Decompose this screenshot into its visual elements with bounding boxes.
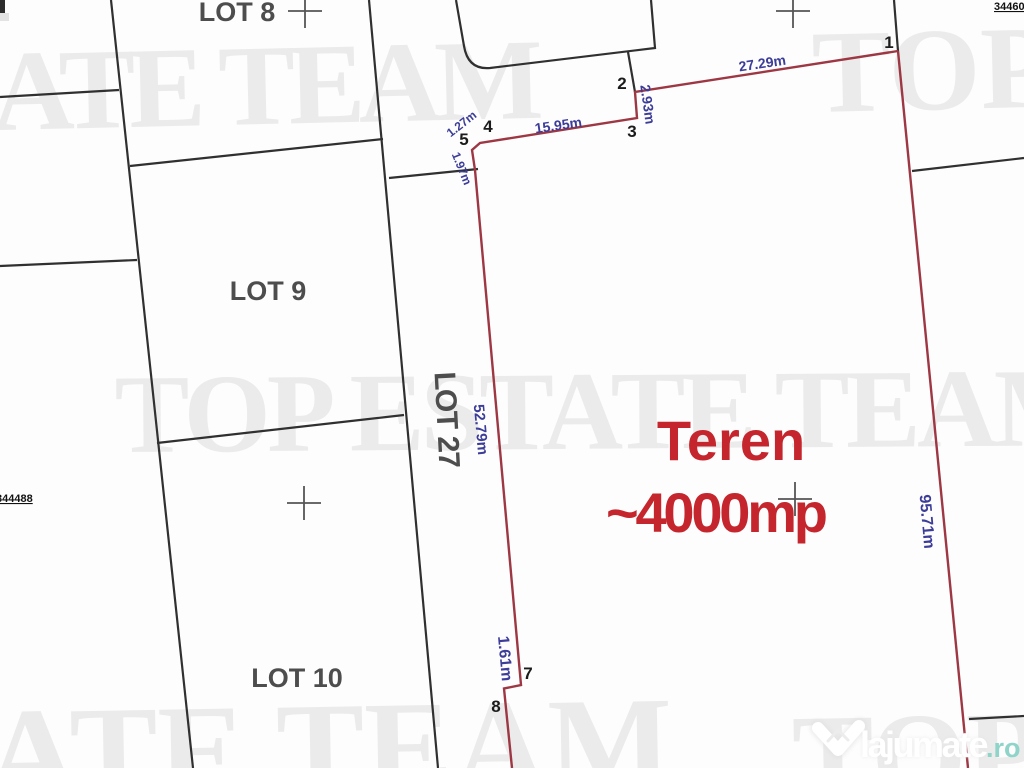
- svg-text:TOP ESTATE TEAM: TOP ESTATE TEAM: [114, 346, 1024, 477]
- svg-text:8: 8: [491, 697, 500, 716]
- svg-text:344488: 344488: [0, 493, 33, 505]
- svg-text:.ro: .ro: [986, 733, 1021, 763]
- svg-text:LOT 9: LOT 9: [230, 276, 307, 306]
- svg-text:~4000mp: ~4000mp: [606, 481, 828, 544]
- svg-text:1: 1: [884, 33, 893, 52]
- svg-text:2: 2: [617, 74, 626, 93]
- svg-text:LOT 10: LOT 10: [251, 663, 343, 693]
- svg-text:lajumate: lajumate: [860, 724, 988, 765]
- svg-text:LOT 8: LOT 8: [199, 0, 276, 27]
- svg-text:7: 7: [523, 664, 532, 683]
- svg-text:5: 5: [459, 130, 468, 149]
- svg-text:TOP: TOP: [811, 2, 1024, 138]
- svg-text:4: 4: [483, 117, 493, 136]
- svg-text:344600: 344600: [994, 1, 1024, 13]
- svg-text:Teren: Teren: [657, 409, 805, 472]
- svg-text:3: 3: [627, 122, 636, 141]
- svg-text:LOT 27: LOT 27: [428, 371, 466, 469]
